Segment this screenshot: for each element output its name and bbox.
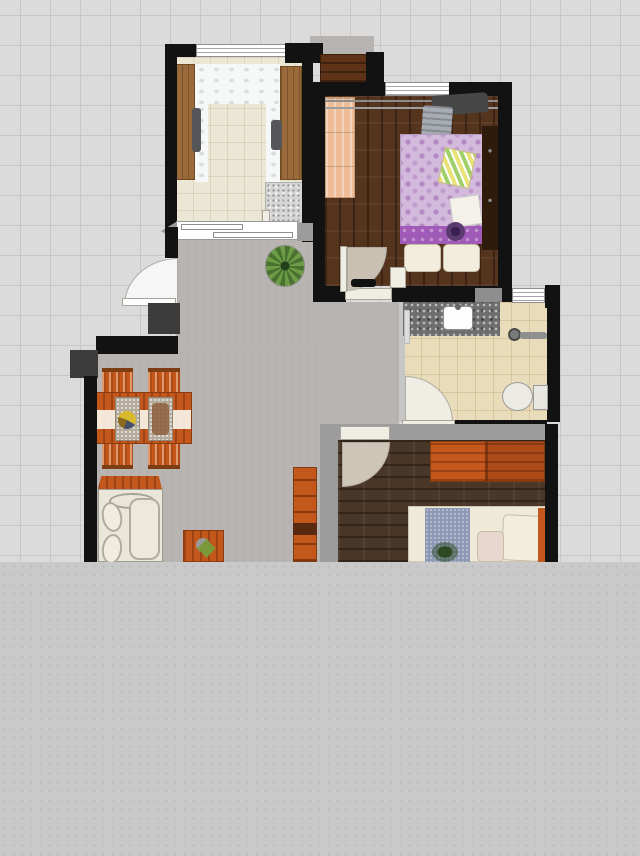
toilet-tank[interactable] — [533, 385, 548, 410]
slippers[interactable] — [351, 279, 376, 287]
sliding-door-panel-1 — [181, 224, 243, 230]
bathroom-corner-wall[interactable] — [545, 285, 560, 308]
bathroom-window[interactable] — [512, 288, 545, 303]
study-cabinet-right[interactable] — [280, 66, 302, 180]
table-runner — [95, 410, 191, 429]
bedroom-wall-right[interactable] — [498, 82, 512, 289]
study-chair-right[interactable] — [271, 120, 282, 150]
sofa[interactable] — [98, 489, 163, 562]
dining-chair-top-left[interactable] — [102, 368, 133, 395]
bookshelf[interactable] — [293, 467, 317, 562]
hall-bathroom-floor[interactable] — [313, 302, 399, 432]
bedroom-wall-left[interactable] — [313, 95, 325, 288]
bedroom-door-leaf[interactable] — [340, 246, 347, 292]
entry-wall-right[interactable] — [366, 52, 384, 85]
floorplan-app — [0, 0, 640, 856]
balcony-wall-right[interactable] — [302, 44, 313, 242]
sliding-door-panel-2 — [213, 232, 293, 238]
study-counter-top[interactable] — [194, 64, 280, 104]
hallway-floor[interactable] — [176, 226, 313, 352]
master-pillow — [501, 514, 542, 562]
bedroom-wall-top-left[interactable] — [313, 82, 386, 96]
corner-block[interactable] — [70, 350, 98, 378]
balcony-window[interactable] — [196, 44, 287, 57]
peach-wardrobe[interactable] — [325, 97, 355, 198]
sink-faucet — [455, 304, 461, 310]
washing-machine[interactable] — [265, 182, 305, 223]
shower-arm — [520, 332, 547, 339]
towel-rail[interactable] — [404, 310, 410, 344]
dining-chair-top-right[interactable] — [148, 368, 180, 395]
shoe-cabinet[interactable] — [320, 54, 368, 83]
bed-plant-decor — [432, 542, 458, 562]
master-wardrobe[interactable] — [430, 441, 545, 482]
sofa-pillow-2 — [100, 533, 124, 565]
console-table[interactable] — [98, 476, 162, 489]
balcony-wall-stub[interactable] — [297, 223, 313, 241]
bedroom-window[interactable] — [385, 82, 450, 96]
master-pillow-small — [477, 531, 504, 562]
food-plate — [118, 411, 136, 429]
master-door-threshold — [340, 426, 390, 440]
dining-table[interactable] — [94, 392, 192, 444]
sofa-seat — [129, 498, 160, 560]
toilet-bowl[interactable] — [502, 382, 533, 411]
bed-pillow-right — [443, 244, 480, 272]
balcony-sliding-door[interactable] — [176, 221, 298, 240]
master-wall-left[interactable] — [320, 424, 338, 562]
bathroom-wall-gray-top[interactable] — [475, 288, 502, 302]
bed-pillow-left — [404, 244, 441, 272]
study-chair-left[interactable] — [192, 108, 201, 152]
placemat-pattern — [152, 403, 169, 435]
round-hat[interactable] — [446, 222, 465, 241]
bottom-panel — [0, 562, 640, 856]
bedside-box[interactable] — [390, 267, 406, 288]
master-wall-right[interactable] — [545, 424, 558, 562]
entry-wall-upper[interactable] — [165, 227, 178, 260]
living-wall-left[interactable] — [84, 376, 97, 562]
living-wall-top[interactable] — [96, 336, 178, 354]
bookshelf-divider — [293, 523, 317, 535]
potted-plant[interactable] — [266, 246, 304, 286]
bed-foot-band — [400, 226, 484, 244]
dining-chair-bottom-left[interactable] — [102, 443, 133, 469]
bathroom-wall-right[interactable] — [547, 306, 560, 422]
tall-cabinet[interactable] — [482, 126, 498, 250]
entry-pillar[interactable] — [148, 303, 180, 334]
dining-chair-bottom-right[interactable] — [148, 443, 180, 469]
